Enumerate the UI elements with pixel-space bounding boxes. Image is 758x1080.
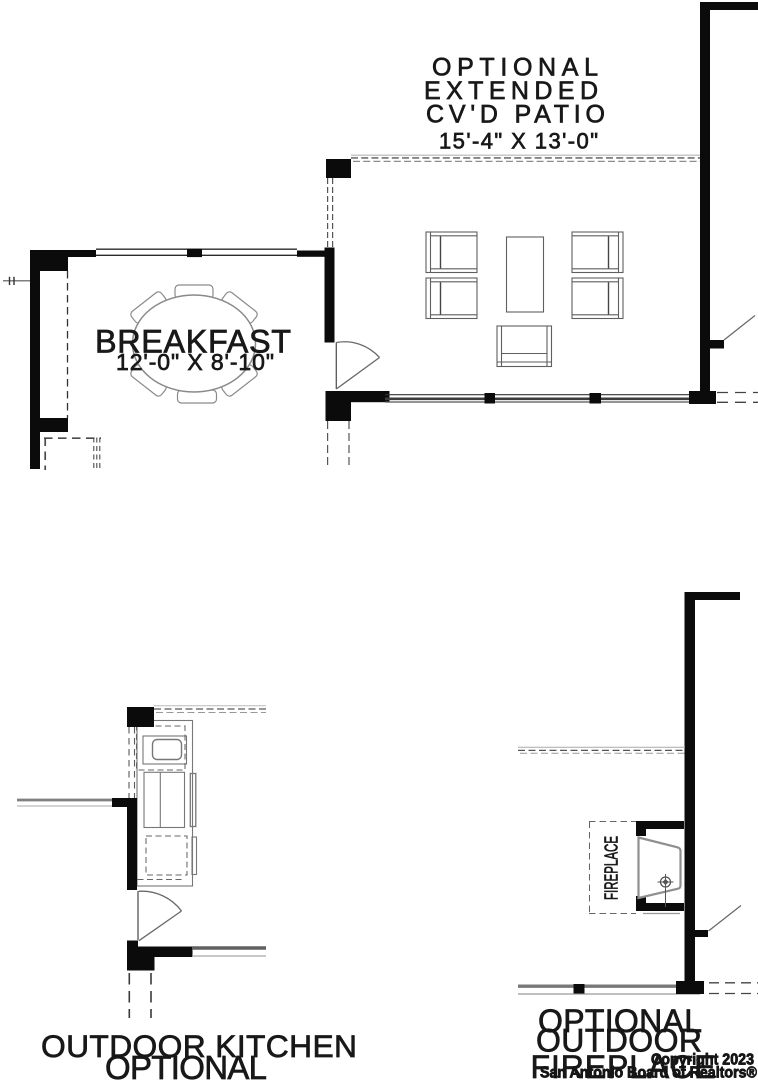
svg-text:CV'D PATIO: CV'D PATIO	[426, 101, 605, 129]
svg-text:12'-0" X 8'-10": 12'-0" X 8'-10"	[116, 349, 274, 375]
svg-text:FIREPLACE: FIREPLACE	[602, 836, 623, 900]
svg-text:OPTIONAL: OPTIONAL	[105, 1049, 267, 1080]
svg-text:15'-4" X 13'-0": 15'-4" X 13'-0"	[439, 129, 598, 154]
svg-text:San Antonio Board of Realtors®: San Antonio Board of Realtors®	[540, 1065, 758, 1080]
